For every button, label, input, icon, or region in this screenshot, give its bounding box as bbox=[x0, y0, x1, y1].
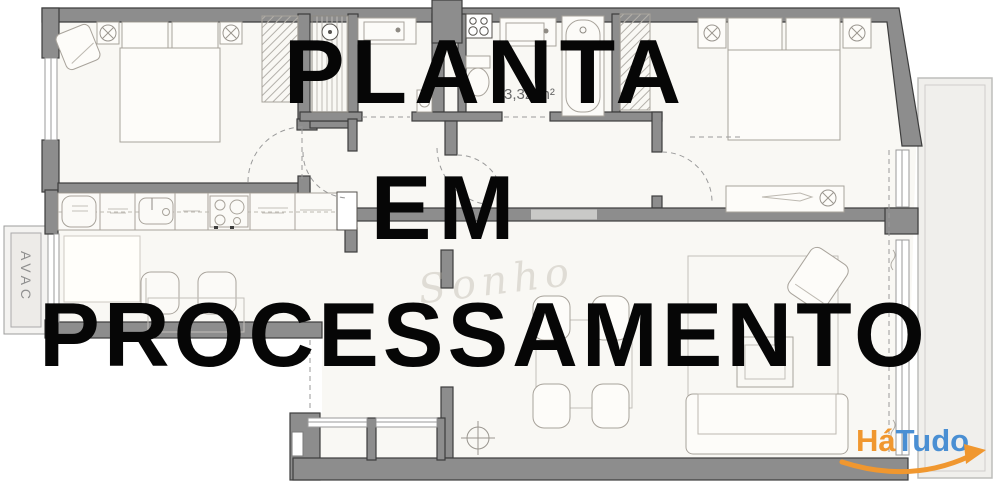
avac-label: AVAC bbox=[18, 251, 34, 289]
overlay-line-1: PLANTA bbox=[0, 27, 986, 118]
overlay-line-2: EM bbox=[0, 163, 946, 254]
hatudo-logo: HáTudo bbox=[856, 423, 969, 459]
balcony bbox=[918, 78, 992, 478]
overlay-line-3: PROCESSAMENTO bbox=[0, 290, 984, 381]
logo-swoosh-icon bbox=[838, 440, 998, 482]
floorplan-image: AVAC 3,32 m² Sonho PLANTA EM PROCESSAMEN… bbox=[0, 0, 1000, 487]
